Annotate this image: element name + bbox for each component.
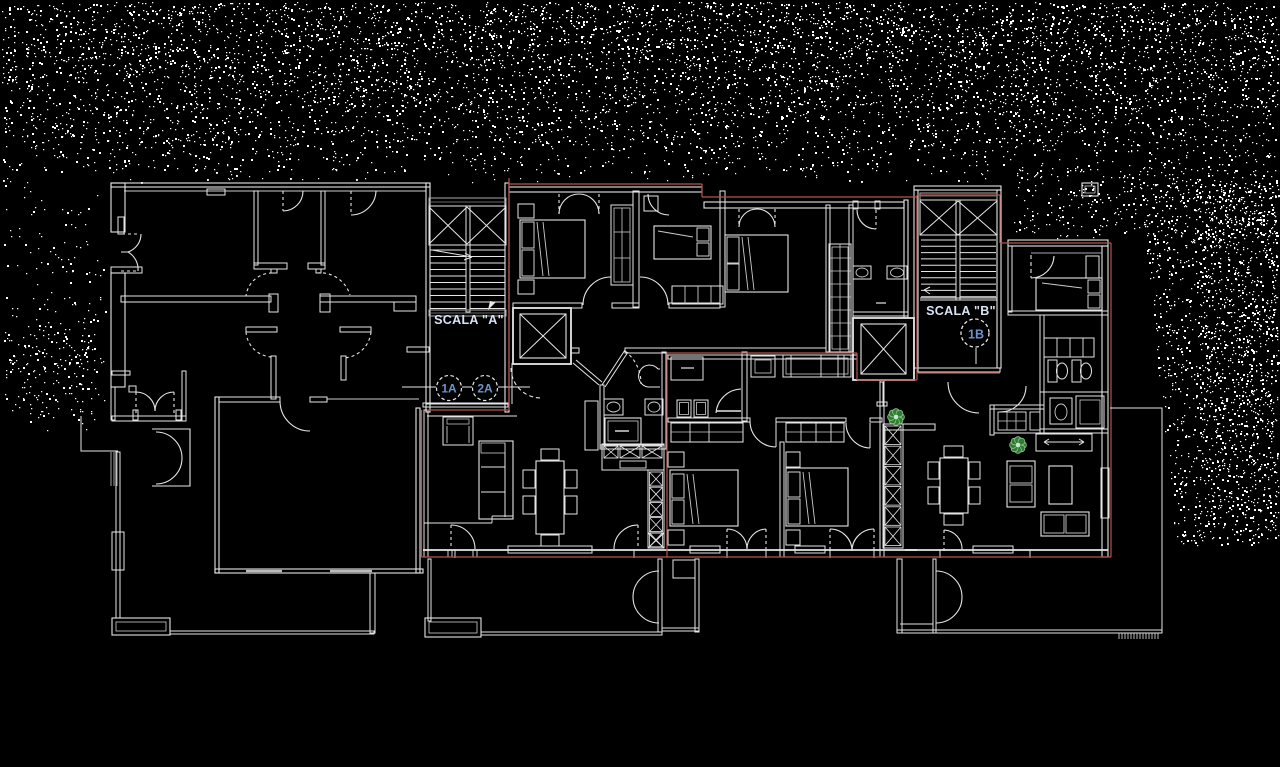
svg-text:SCALA "A": SCALA "A" bbox=[434, 313, 504, 327]
svg-text:1B: 1B bbox=[968, 328, 984, 342]
svg-text:1A: 1A bbox=[441, 382, 457, 396]
svg-text:SCALA "B": SCALA "B" bbox=[926, 304, 996, 318]
svg-text:2A: 2A bbox=[477, 382, 493, 396]
